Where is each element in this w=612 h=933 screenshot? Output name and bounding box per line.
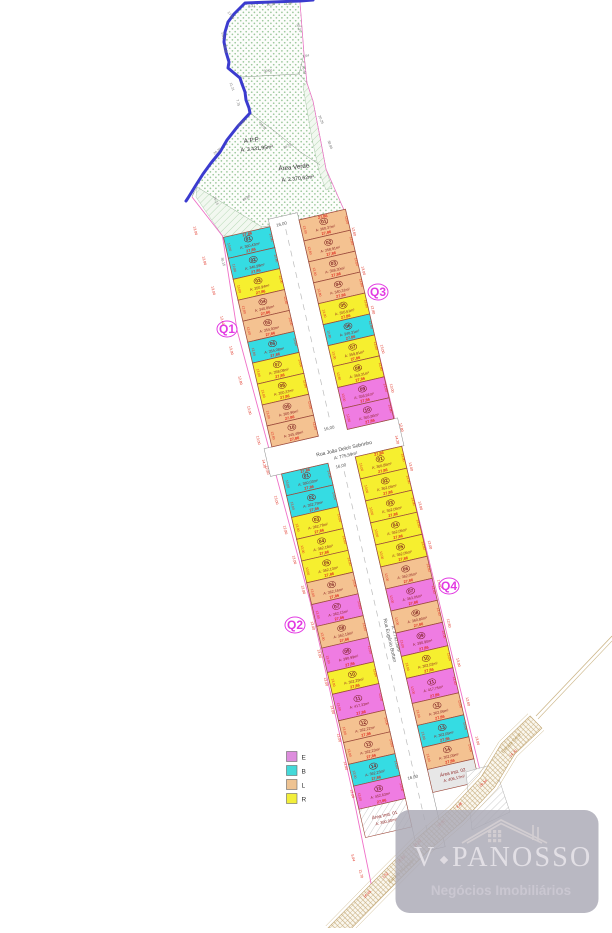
- svg-text:B: B: [302, 769, 306, 776]
- svg-text:30,00: 30,00: [263, 69, 272, 74]
- svg-text:Q3: Q3: [370, 285, 386, 299]
- svg-text:Negócios Imobiliários: Negócios Imobiliários: [431, 883, 571, 898]
- svg-text:13,00: 13,00: [400, 453, 406, 462]
- svg-text:V: V: [414, 842, 436, 873]
- svg-text:Q1: Q1: [219, 322, 235, 336]
- svg-text:PANOSSO: PANOSSO: [452, 842, 592, 873]
- svg-text:L: L: [302, 783, 306, 790]
- svg-text:Q2: Q2: [287, 618, 303, 632]
- svg-text:Q4: Q4: [441, 579, 457, 593]
- svg-text:E: E: [302, 755, 307, 762]
- svg-text:R: R: [302, 797, 307, 804]
